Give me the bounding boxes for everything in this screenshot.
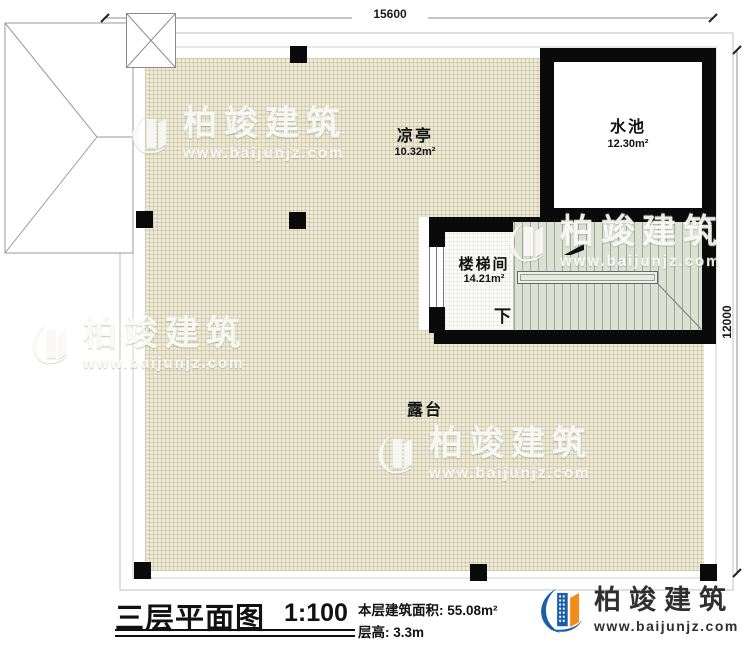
- floor-plan-sheet: 水池 12.30m² 楼梯间 14.21m² 下 凉亭 10.32m² 露: [0, 0, 750, 649]
- stair-detail-lines: [0, 0, 750, 649]
- stair-break-line: [658, 284, 701, 329]
- stair-direction-arrow-icon: [564, 244, 584, 255]
